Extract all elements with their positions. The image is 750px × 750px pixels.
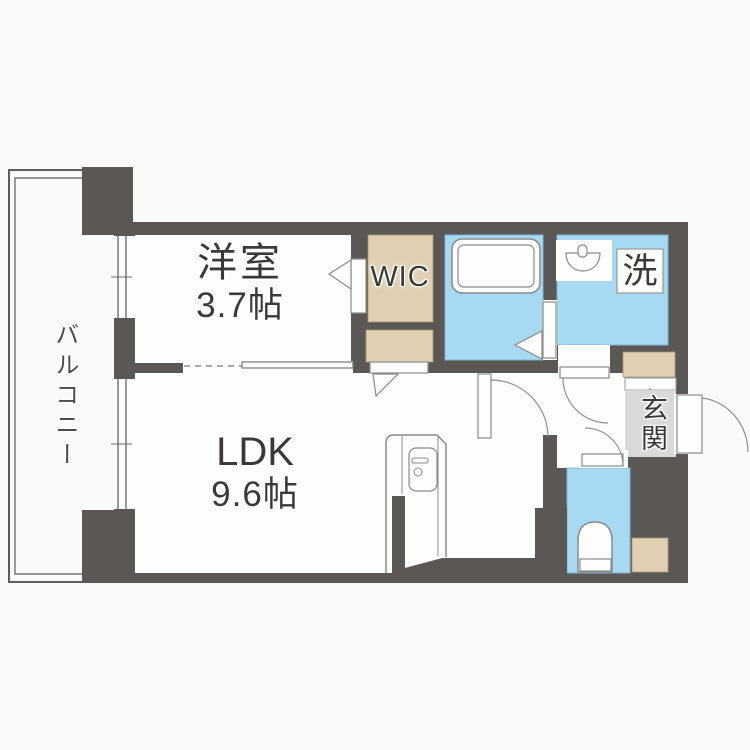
shoe-cabinet (623, 352, 675, 377)
bedroom-label: 洋室 3.7帖 (140, 241, 340, 325)
washbasin-icon (556, 240, 612, 281)
entrance-label: 玄関 (637, 392, 667, 456)
bedroom-name: 洋室 (140, 241, 340, 286)
closet (366, 330, 433, 362)
window (111, 379, 135, 509)
wic-label: WIC (366, 261, 434, 293)
kitchen-wall-stub (392, 496, 405, 574)
laundry-label: 洗 (617, 252, 663, 291)
toilet-icon (578, 522, 612, 572)
front-door (677, 395, 748, 453)
storage-box (632, 538, 668, 572)
floorplan-drawing (0, 0, 750, 750)
wall-stub (543, 435, 557, 508)
bathtub-icon (452, 239, 540, 293)
window (111, 236, 135, 318)
ldk-size: 9.6帖 (155, 475, 355, 514)
bedroom-size: 3.7帖 (140, 286, 340, 325)
hallway (543, 373, 557, 435)
ldk-label: LDK 9.6帖 (155, 430, 355, 514)
balcony-label: バルコニー (50, 302, 77, 492)
entrance-step (625, 378, 676, 390)
ldk-name: LDK (155, 430, 355, 475)
hallway (490, 373, 543, 468)
wall-stub (535, 508, 567, 583)
